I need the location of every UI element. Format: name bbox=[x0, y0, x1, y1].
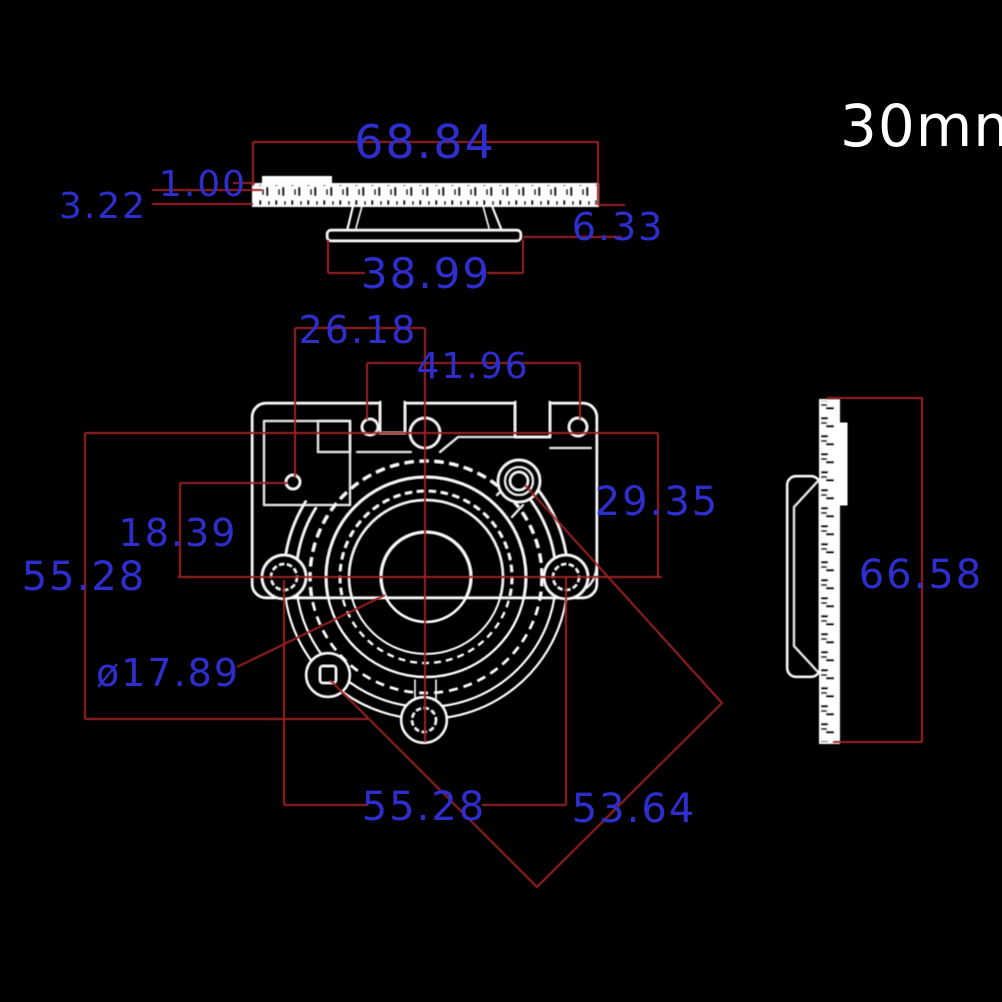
dim-overall-width-label: 68.84 bbox=[354, 115, 496, 169]
side-view-cone-body bbox=[787, 476, 820, 677]
dim-lens-diameter-label: ø17.89 bbox=[96, 651, 240, 695]
top-notch-left-cut bbox=[380, 400, 405, 433]
top-view-plate-strip bbox=[253, 184, 598, 206]
dim-lip-thickness-label: 1.00 bbox=[159, 164, 247, 205]
top-notch-right-cut bbox=[515, 400, 550, 437]
dim-center-to-top-holes-label: 29.35 bbox=[595, 479, 720, 525]
dim-left-height-label: 55.28 bbox=[22, 554, 147, 600]
dim-hole-offset-y-label: 18.39 bbox=[119, 511, 238, 555]
dim-cone-depth-label: 6.33 bbox=[572, 205, 665, 249]
dim-bottom-holes-span-label: 55.28 bbox=[362, 784, 487, 830]
dim-side-height-label: 66.58 bbox=[859, 552, 984, 598]
cad-screenshot: 68.84 1.00 3.22 6.33 38.99 26.18 41.96 1… bbox=[0, 0, 1002, 1002]
dim-diagonal-span-label: 53.64 bbox=[572, 786, 697, 832]
dim-plate-thickness-label: 3.22 bbox=[59, 186, 147, 227]
top-view-bottom-plate bbox=[327, 230, 521, 241]
side-view-plate-strip bbox=[820, 400, 839, 743]
dim-top-holes-span-label: 41.96 bbox=[416, 346, 529, 387]
cad-drawing: 68.84 1.00 3.22 6.33 38.99 26.18 41.96 1… bbox=[0, 0, 1002, 1002]
dim-cone-plate-width-label: 38.99 bbox=[361, 249, 491, 298]
size-title: 30mm bbox=[840, 92, 1002, 160]
dim-hole-offset-x-label: 26.18 bbox=[299, 308, 418, 352]
side-view-lip bbox=[839, 423, 847, 505]
ear-bottom-left bbox=[306, 653, 350, 697]
